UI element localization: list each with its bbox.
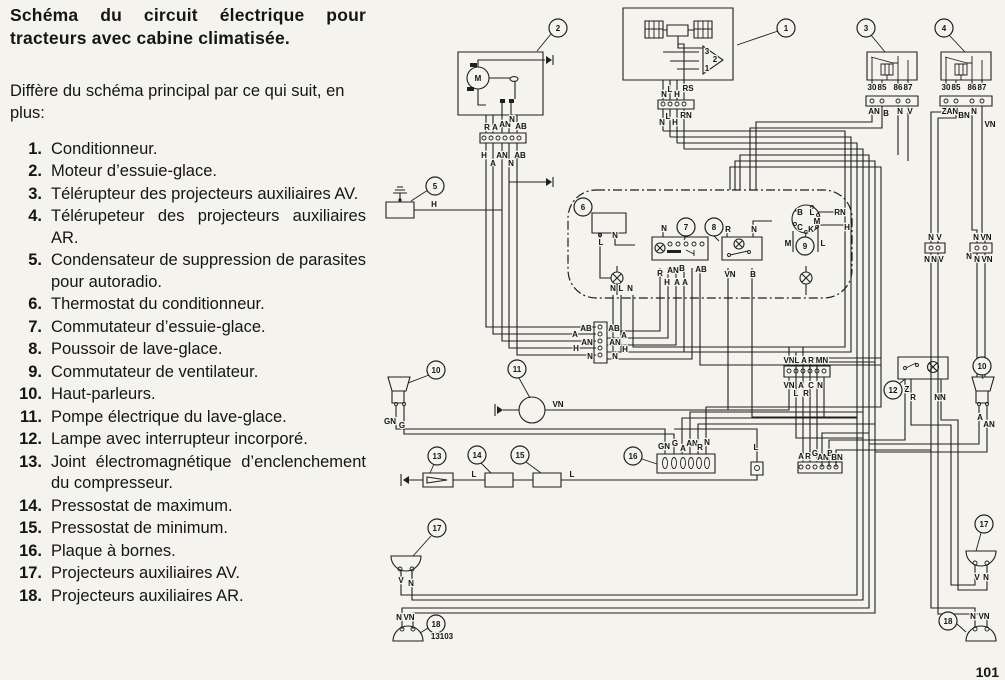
component-11-washer-pump	[519, 397, 545, 423]
wire-label: N	[659, 118, 665, 127]
component-17-front-projector-left	[391, 556, 421, 577]
wire-label: L	[794, 389, 799, 398]
wire-label: N	[661, 224, 667, 233]
wire-label: 3	[705, 47, 710, 56]
wiring-layer	[396, 60, 987, 629]
wire-label: 87	[978, 83, 987, 92]
wire-label: M	[814, 217, 821, 226]
wire-label: A	[572, 330, 578, 339]
wire-label: G	[399, 421, 405, 430]
wire-label: AB	[515, 122, 527, 131]
component-8-washer-button	[722, 237, 762, 260]
svg-text:9: 9	[803, 242, 808, 251]
wire-label: 1	[705, 64, 710, 73]
svg-text:1: 1	[784, 24, 789, 33]
svg-text:3: 3	[864, 24, 869, 33]
wire-label: A	[621, 331, 627, 340]
wire-label: RN	[834, 208, 846, 217]
wire-label: N	[931, 255, 937, 264]
callout-leader-lines	[408, 31, 983, 633]
callout-12: 12	[884, 381, 902, 399]
callout-3: 3	[857, 19, 875, 37]
wire-label: RN	[680, 111, 692, 120]
callout-13: 13	[428, 447, 446, 465]
wire-label: 85	[878, 83, 887, 92]
component-2-wiper-motor	[458, 52, 543, 143]
wire-label: N	[983, 573, 989, 582]
wire-label: N	[396, 613, 402, 622]
wire-label: ZAN	[942, 107, 959, 116]
wire-label: L	[472, 470, 477, 479]
wire-label: H	[622, 345, 628, 354]
wire-label: 2	[713, 55, 718, 64]
svg-text:16: 16	[629, 452, 638, 461]
callout-8: 8	[705, 218, 723, 236]
wire-label: M	[475, 74, 482, 83]
wire-label: VN	[981, 255, 992, 264]
callout-18: 18	[939, 612, 957, 630]
callout-10: 10	[973, 357, 991, 375]
wire-label: R	[697, 443, 703, 452]
wire-label: AN	[868, 107, 880, 116]
wire-label: H	[431, 200, 437, 209]
wire-label: R	[725, 225, 731, 234]
svg-text:4: 4	[942, 24, 947, 33]
wire-label: A	[490, 159, 496, 168]
wire-label: 87	[904, 83, 913, 92]
wire-label: V	[938, 255, 944, 264]
callout-9: 9	[796, 237, 814, 255]
callout-11: 11	[508, 360, 526, 378]
wire-label: A	[492, 123, 498, 132]
wire-label: MN	[816, 356, 829, 365]
svg-text:10: 10	[978, 362, 987, 371]
wire-label: 30	[942, 83, 951, 92]
wire-label: N	[587, 352, 593, 361]
callout-16: 16	[624, 447, 642, 465]
component-10-speaker-right	[972, 377, 994, 406]
wire-label: N	[924, 255, 930, 264]
wire-label: N	[973, 233, 979, 242]
wire-label: N	[508, 159, 514, 168]
wire-label: V	[974, 573, 980, 582]
component-17-front-projector-right	[966, 551, 996, 566]
wire-label: V	[907, 107, 913, 116]
svg-text:2: 2	[556, 24, 561, 33]
wire-label: L	[754, 443, 759, 452]
wire-label: R	[805, 452, 811, 461]
svg-text:11: 11	[513, 365, 522, 374]
wire-label: A	[801, 356, 807, 365]
wire-label: Z	[905, 385, 910, 394]
wire-label: 85	[952, 83, 961, 92]
wire-label: B	[679, 264, 685, 273]
wire-label: AN	[609, 338, 621, 347]
circuit-diagram: 123456789101112131415161017171818 MRAANN…	[0, 0, 1005, 680]
svg-text:18: 18	[432, 620, 441, 629]
component-15-min-pressostat	[533, 473, 561, 487]
wire-label: A	[798, 452, 804, 461]
wire-label: NN	[934, 393, 946, 402]
wire-label: H	[844, 223, 850, 232]
component-6-thermostat	[592, 213, 626, 237]
relay-4-rear-aux	[940, 52, 992, 106]
svg-text:17: 17	[980, 520, 989, 529]
wire-label: RS	[682, 84, 694, 93]
component-18-rear-projector-right	[966, 626, 996, 641]
wire-label: B	[750, 270, 756, 279]
callout-14: 14	[468, 446, 486, 464]
callout-10: 10	[427, 361, 445, 379]
wire-label: L	[666, 112, 671, 121]
component-7-wiper-switch	[652, 237, 708, 260]
wire-label: 86	[894, 83, 903, 92]
wire-label: AN	[496, 151, 508, 160]
callout-6: 6	[574, 198, 592, 216]
wire-label: N	[408, 579, 414, 588]
wire-label: L	[795, 356, 800, 365]
wire-label: N	[661, 90, 667, 99]
mid-connector	[594, 322, 607, 363]
wire-label: VN	[552, 400, 563, 409]
wire-label: N	[627, 284, 633, 293]
page-number: 101	[976, 664, 999, 680]
wire-label: H	[664, 278, 670, 287]
wire-label: VN	[980, 233, 991, 242]
wire-label: V	[936, 233, 942, 242]
fuse-box-l	[751, 462, 763, 475]
wire-label: VN	[724, 270, 735, 279]
wire-label: N	[612, 231, 618, 240]
cab-lamp-left-icon	[611, 272, 623, 284]
svg-text:14: 14	[473, 451, 482, 460]
wire-label: AB	[580, 324, 592, 333]
wire-label: GN	[658, 442, 670, 451]
callout-17: 17	[428, 519, 446, 537]
callout-5: 5	[426, 177, 444, 195]
wire-label: A	[977, 413, 983, 422]
wire-label: G	[672, 439, 678, 448]
component-10-speaker-left	[388, 377, 410, 406]
svg-text:13: 13	[433, 452, 442, 461]
wire-label: H	[481, 151, 487, 160]
wire-label: M	[785, 239, 792, 248]
wire-label: N	[509, 115, 515, 124]
component-5-capacitor	[386, 187, 414, 218]
wire-label: N	[897, 107, 903, 116]
callout-17: 17	[975, 515, 993, 533]
wire-label: N	[970, 612, 976, 621]
cab-lamp-right-icon	[800, 272, 812, 284]
wire-label: C	[808, 381, 814, 390]
wire-label: AN	[983, 420, 995, 429]
component-14-max-pressostat	[485, 473, 513, 487]
wire-label: L	[570, 470, 575, 479]
wire-label: N	[966, 252, 972, 261]
wire-label: H	[672, 118, 678, 127]
wire-label: VN	[978, 612, 989, 621]
callout-18: 18	[427, 615, 445, 633]
svg-text:7: 7	[684, 223, 689, 232]
wire-label: GN	[384, 417, 396, 426]
wire-labels-layer: MRAANNABHAANNAB321NLHRSNLHRN30858687ANBN…	[384, 47, 996, 641]
wire-label: AN	[581, 338, 593, 347]
wire-label: V	[398, 576, 404, 585]
wire-label: BN	[831, 453, 843, 462]
wire-label: N	[971, 107, 977, 116]
wire-label: 13103	[431, 632, 454, 641]
wire-label: L	[599, 238, 604, 247]
connector-small-left	[925, 243, 945, 253]
wire-label: AN	[667, 266, 679, 275]
wire-label: AB	[608, 324, 620, 333]
wire-label: H	[674, 90, 680, 99]
wire-label: N	[974, 255, 980, 264]
wire-label: VN	[403, 613, 414, 622]
wire-label: N	[704, 438, 710, 447]
svg-text:18: 18	[944, 617, 953, 626]
svg-text:6: 6	[581, 203, 586, 212]
wire-label: C	[797, 223, 803, 232]
wire-label: L	[821, 239, 826, 248]
wire-label: 86	[968, 83, 977, 92]
component-12-lamp-with-switch	[898, 357, 948, 379]
wire-label: AB	[514, 151, 526, 160]
ground-icon	[401, 55, 553, 486]
wire-label: VN	[783, 356, 794, 365]
svg-text:12: 12	[889, 386, 898, 395]
wire-label: N	[817, 381, 823, 390]
wire-label: R	[657, 269, 663, 278]
callout-4: 4	[935, 19, 953, 37]
wire-label: H	[573, 344, 579, 353]
svg-text:8: 8	[712, 223, 717, 232]
callout-7: 7	[677, 218, 695, 236]
wire-label: B	[883, 109, 889, 118]
wire-label: N	[928, 233, 934, 242]
wire-label: B	[797, 208, 803, 217]
svg-text:17: 17	[433, 524, 442, 533]
wire-label: N	[610, 284, 616, 293]
connector-a-r-g-an-b-bn	[798, 462, 842, 473]
wire-label: A	[674, 278, 680, 287]
connector-vn-l-a-r-mn	[784, 366, 830, 377]
component-16-terminal-block	[657, 454, 715, 473]
callout-1: 1	[777, 19, 795, 37]
wire-label: BN	[958, 111, 970, 120]
wire-label: VN	[984, 120, 995, 129]
wire-label: L	[810, 208, 815, 217]
wire-label: A	[680, 444, 686, 453]
wire-label: R	[803, 389, 809, 398]
wire-label: 30	[868, 83, 877, 92]
wire-label: R	[484, 123, 490, 132]
connector-small-right	[970, 243, 992, 253]
wire-label: R	[910, 393, 916, 402]
relay-3-front-aux	[866, 52, 918, 106]
wire-label: N	[612, 352, 618, 361]
wire-label: A	[682, 278, 688, 287]
svg-text:5: 5	[433, 182, 438, 191]
svg-text:15: 15	[516, 451, 525, 460]
wire-label: N	[751, 225, 757, 234]
callout-2: 2	[549, 19, 567, 37]
wire-label: R	[808, 356, 814, 365]
component-18-rear-projector-left	[393, 626, 423, 641]
callout-15: 15	[511, 446, 529, 464]
wire-label: L	[668, 85, 673, 94]
svg-text:10: 10	[432, 366, 441, 375]
wire-label: L	[619, 284, 624, 293]
component-13-compressor-clutch	[423, 473, 453, 487]
wire-label: AB	[695, 265, 707, 274]
wire-label: K	[808, 225, 814, 234]
